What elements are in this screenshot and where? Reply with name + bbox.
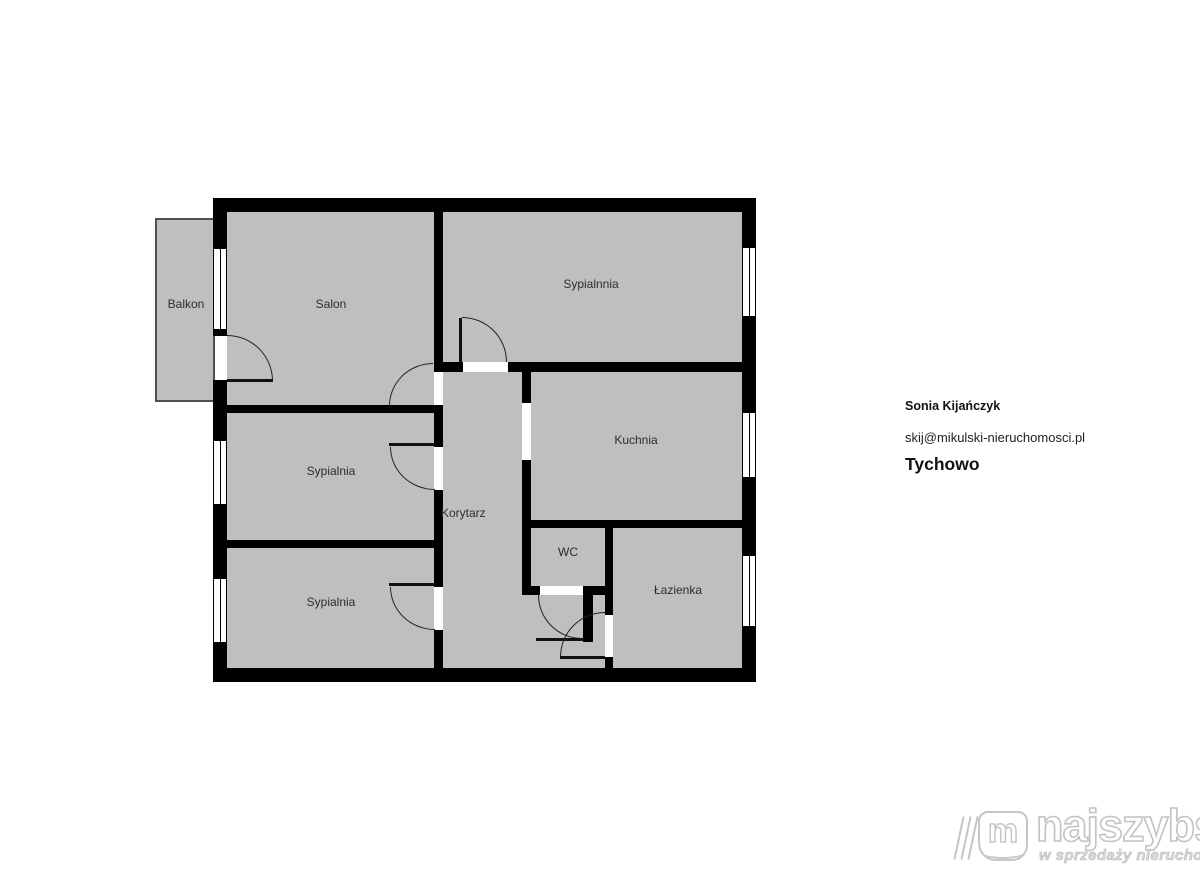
- window: [213, 440, 227, 505]
- room-korytarz: [443, 372, 522, 668]
- wall-segment: [434, 490, 443, 587]
- wall-segment: [213, 405, 443, 413]
- agent-city: Tychowo: [905, 454, 980, 475]
- agent-email: skij@mikulski-nieruchomosci.pl: [905, 430, 1085, 445]
- wall-segment: [213, 198, 227, 248]
- window: [742, 247, 756, 317]
- door-leaf-sypialnia-1: [389, 443, 435, 446]
- door-leaf-sypialnnia: [459, 318, 462, 362]
- wall-segment: [434, 630, 443, 668]
- window: [742, 555, 756, 627]
- wall-segment: [522, 586, 540, 595]
- room-label-lazienka: Łazienka: [654, 583, 702, 597]
- wall-segment: [742, 478, 756, 555]
- room-label-kuchnia: Kuchnia: [614, 433, 657, 447]
- wall-segment: [605, 657, 613, 668]
- door-leaf-sypialnia-2: [389, 583, 435, 586]
- window: [213, 578, 227, 643]
- room-lazienka: [613, 528, 742, 668]
- window: [742, 412, 756, 478]
- room-label-balkon: Balkon: [168, 297, 205, 311]
- wall-segment: [213, 330, 227, 336]
- logo-monogram: m: [978, 810, 1028, 848]
- room-label-sypialnia-1: Sypialnia: [307, 464, 356, 478]
- wall-segment: [213, 643, 227, 682]
- logo-tagline-text: w sprzedaży nieruchomości: [1039, 847, 1200, 864]
- wall-segment: [522, 372, 531, 403]
- wall-segment: [742, 627, 756, 682]
- door-leaf-balcony: [227, 379, 273, 382]
- wall-segment: [434, 362, 463, 372]
- door-leaf-lazienka: [560, 656, 605, 659]
- room-label-sypialnnia: Sypialnnia: [563, 277, 618, 291]
- logo-brand-text: najszybsi: [1036, 800, 1200, 852]
- wall-segment: [213, 198, 756, 212]
- room-label-wc: WC: [558, 545, 578, 559]
- wall-segment: [508, 362, 742, 372]
- brand-logo: m najszybsi w sprzedaży nieruchomości: [956, 808, 1192, 870]
- wall-segment: [434, 212, 443, 362]
- wall-segment: [522, 520, 756, 528]
- window: [213, 248, 227, 330]
- wall-segment: [605, 520, 613, 615]
- wall-segment: [583, 586, 613, 595]
- floor-plan-page: Balkon Salon Sypialnnia Kuchnia Korytarz…: [0, 0, 1200, 878]
- wall-segment: [213, 540, 443, 548]
- agent-name: Sonia Kijańczyk: [905, 399, 1000, 413]
- room-label-salon: Salon: [316, 297, 347, 311]
- wall-segment: [742, 317, 756, 412]
- wall-segment: [742, 198, 756, 247]
- wall-segment: [213, 668, 756, 682]
- room-label-sypialnia-2: Sypialnia: [307, 595, 356, 609]
- logo-book-curve-icon: [981, 845, 1025, 859]
- room-label-korytarz: Korytarz: [441, 506, 486, 520]
